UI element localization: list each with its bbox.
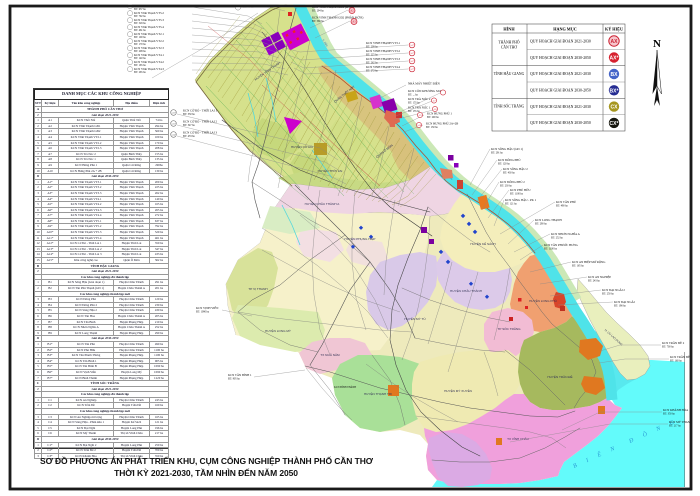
svg-text:KCN LONG THẠNH: KCN LONG THẠNH <box>535 218 562 222</box>
svg-text:KCN ĐẠI NGÃI: KCN ĐẠI NGÃI <box>614 299 635 304</box>
svg-text:KCN ĐÔNG PHÚ 2: KCN ĐÔNG PHÚ 2 <box>500 179 525 184</box>
svg-text:KÝ HIỆU: KÝ HIỆU <box>605 27 623 32</box>
svg-text:ĐT: 700 ha: ĐT: 700 ha <box>662 345 675 348</box>
svg-text:HUYỆN MỶ TÚ: HUYỆN MỶ TÚ <box>404 316 425 321</box>
svg-text:KCN VĩNH THẠNH VT3.2: KCN VĩNH THẠNH VT3.2 <box>366 49 401 53</box>
svg-text:ĐT: 217 ha: ĐT: 217 ha <box>669 424 682 427</box>
svg-text:AX: AX <box>611 39 619 45</box>
svg-text:ĐT: 291 ha: ĐT: 291 ha <box>491 151 504 154</box>
svg-text:KCN TÂN PHÚ: KCN TÂN PHÚ <box>556 199 577 204</box>
svg-text:HUYỆN CỜ ĐỎ: HUYỆN CỜ ĐỎ <box>291 144 314 149</box>
svg-text:ĐT: 347 ha: ĐT: 347 ha <box>183 124 196 127</box>
svg-text:ĐT: 160 ha: ĐT: 160 ha <box>670 359 683 362</box>
svg-text:ĐT: 225 ha: ĐT: 225 ha <box>366 53 379 56</box>
svg-text:ĐT: 252 ha: ĐT: 252 ha <box>551 236 564 239</box>
svg-text:HẠNG MỤC: HẠNG MỤC <box>553 27 577 32</box>
svg-text:KCN KHÁNH HÒA: KCN KHÁNH HÒA <box>663 407 689 412</box>
svg-text:BX*: BX* <box>610 88 619 94</box>
svg-text:A12*: A12* <box>171 112 176 115</box>
svg-text:KCN SÔNG HẬU - PK 1: KCN SÔNG HẬU - PK 1 <box>505 197 537 202</box>
svg-text:ĐT: 272 ha: ĐT: 272 ha <box>366 69 379 72</box>
svg-text:AX*: AX* <box>610 56 619 62</box>
svg-text:CẦN THƠ: CẦN THƠ <box>501 45 518 50</box>
svg-text:QUY HOẠCH GIAI ĐOẠN 2030-2050: QUY HOẠCH GIAI ĐOẠN 2030-2050 <box>530 121 591 125</box>
svg-text:KCN CỜ ĐỎ - THỚI LAI 3: KCN CỜ ĐỎ - THỚI LAI 3 <box>183 130 217 135</box>
svg-text:NHÀ MÁY NHIỆT ĐIỆN: NHÀ MÁY NHIỆT ĐIỆN <box>408 81 441 86</box>
svg-text:KCN CỒN KHƯƠNG M.R: KCN CỒN KHƯƠNG M.R <box>408 88 442 93</box>
svg-text:ĐT: 290 ha: ĐT: 290 ha <box>427 116 440 119</box>
svg-text:ĐT: 1090 ha: ĐT: 1090 ha <box>196 310 210 313</box>
svg-text:KCN PHÚ HỮU: KCN PHÚ HỮU <box>510 187 531 192</box>
svg-text:KCN TÂN PHƯỚC HƯNG: KCN TÂN PHƯỚC HƯNG <box>544 242 579 247</box>
svg-text:HUYỆN CHÂU THÀNH: HUYỆN CHÂU THÀNH <box>450 288 482 293</box>
svg-text:TỈNH HẬU GIANG: TỈNH HẬU GIANG <box>494 71 525 76</box>
svg-text:KCN TRÀ NÓC 1: KCN TRÀ NÓC 1 <box>408 105 431 110</box>
svg-text:HUYỆN MỶ XUYÊN: HUYỆN MỶ XUYÊN <box>444 388 472 393</box>
svg-text:A13*: A13* <box>171 123 176 126</box>
svg-text:KCN AN NGHIỆP: KCN AN NGHIỆP <box>588 274 611 279</box>
svg-text:KCN SÔNG HẬU (GĐ 1): KCN SÔNG HẬU (GĐ 1) <box>491 146 523 151</box>
svg-text:KCN VỊNH VIỄN: KCN VỊNH VIỄN <box>196 305 219 310</box>
svg-text:KCN HƯNG PHÚ 1: KCN HƯNG PHÚ 1 <box>427 111 452 116</box>
svg-text:ĐT: 262 ha: ĐT: 262 ha <box>366 61 379 64</box>
svg-text:KCN TRẦN ĐỀ 2: KCN TRẦN ĐỀ 2 <box>662 340 685 345</box>
svg-text:QUY HOẠCH GIAI ĐOẠN 2030-2050: QUY HOẠCH GIAI ĐOẠN 2030-2050 <box>530 89 591 93</box>
svg-text:ĐT: 155 ha: ĐT: 155 ha <box>408 101 421 104</box>
svg-text:HUYỆN CHÂU THÀNH A: HUYỆN CHÂU THÀNH A <box>305 201 341 206</box>
svg-text:ĐT: 1100 ha: ĐT: 1100 ha <box>544 247 558 250</box>
svg-text:QUY HOẠCH GIAI ĐOẠN 2021-2030: QUY HOẠCH GIAI ĐOẠN 2021-2030 <box>530 105 591 109</box>
svg-text:KCN ĐẠI NGÃI 2: KCN ĐẠI NGÃI 2 <box>602 287 625 292</box>
svg-text:THÀNH PHỐ: THÀNH PHỐ <box>498 40 520 45</box>
svg-text:CX: CX <box>611 105 619 111</box>
svg-text:A14*: A14* <box>171 134 176 137</box>
svg-text:KCN CỜ ĐỎ - THỚI LAI 2: KCN CỜ ĐỎ - THỚI LAI 2 <box>183 119 217 124</box>
svg-text:KCN BÌNH THÀNH: KCN BÌNH THÀNH <box>334 386 356 389</box>
svg-text:ĐT: 905 ha: ĐT: 905 ha <box>228 377 241 380</box>
svg-text:KCN CỜ ĐỎ - THỚI LAI 1: KCN CỜ ĐỎ - THỚI LAI 1 <box>183 108 217 113</box>
svg-text:ĐT: 196 ha: ĐT: 196 ha <box>614 304 627 307</box>
svg-text:HUYỆN PHỤNG HIỆP: HUYỆN PHỤNG HIỆP <box>345 236 376 241</box>
svg-text:KCN AN HIỆP MỞ RỘNG: KCN AN HIỆP MỞ RỘNG <box>572 259 606 264</box>
svg-text:ĐT: 243 ha: ĐT: 243 ha <box>588 279 601 282</box>
svg-text:KCN ĐÔNG PHÚ: KCN ĐÔNG PHÚ <box>498 157 521 162</box>
svg-text:TX NGÃ NĂM: TX NGÃ NĂM <box>320 352 340 357</box>
svg-text:ĐT: ... ha: ĐT: ... ha <box>408 93 419 96</box>
svg-text:KCN VĩNH THẠNH VT3.3: KCN VĩNH THẠNH VT3.3 <box>366 57 401 61</box>
svg-text:QUY HOẠCH GIAI ĐOẠN 2021-2030: QUY HOẠCH GIAI ĐOẠN 2021-2030 <box>530 72 591 76</box>
svg-text:ĐT: 165 ha: ĐT: 165 ha <box>572 264 585 267</box>
svg-text:HUYỆN THỚI LAI: HUYỆN THỚI LAI <box>318 168 343 173</box>
svg-text:ĐT: 120 ha: ĐT: 120 ha <box>498 162 511 165</box>
svg-text:ĐT: 350 ha: ĐT: 350 ha <box>663 412 676 415</box>
svg-text:TỈNH SÓC TRĂNG: TỈNH SÓC TRĂNG <box>494 104 525 109</box>
svg-text:ĐT: 121 ha: ĐT: 121 ha <box>505 202 518 205</box>
svg-text:ĐT: 430 ha: ĐT: 430 ha <box>503 171 516 174</box>
svg-text:ĐT: 294 ha: ĐT: 294 ha <box>312 9 325 12</box>
svg-text:QUY HOẠCH GIAI ĐOẠN 2021-2030: QUY HOẠCH GIAI ĐOẠN 2021-2030 <box>530 40 591 44</box>
svg-text:TP VỊ THANH: TP VỊ THANH <box>248 287 267 291</box>
svg-text:ĐT: 230 ha: ĐT: 230 ha <box>500 184 513 187</box>
svg-text:KCN TRẦN ĐỀ: KCN TRẦN ĐỀ <box>670 354 690 359</box>
svg-text:HUYỆN LONG MỶ: HUYỆN LONG MỶ <box>265 328 291 333</box>
svg-text:HUYỆN TRẦN ĐỀ: HUYỆN TRẦN ĐỀ <box>547 374 572 379</box>
svg-text:CX*: CX* <box>610 121 619 127</box>
svg-text:N: N <box>653 38 661 50</box>
svg-text:KCN HƯNG PHÚ 2A+2B: KCN HƯNG PHÚ 2A+2B <box>426 121 458 126</box>
svg-text:ĐT: 350 ha: ĐT: 350 ha <box>183 113 196 116</box>
svg-text:HUYỆN LONG PHÚ: HUYỆN LONG PHÚ <box>529 298 557 303</box>
svg-text:KCN VĩNH THẠNH VT4.4: KCN VĩNH THẠNH VT4.4 <box>366 65 401 69</box>
svg-text:KCN MỶ THANH: KCN MỶ THANH <box>669 419 693 424</box>
svg-text:HUYỆN KẾ SÁCH: HUYỆN KẾ SÁCH <box>470 241 495 246</box>
svg-text:ĐT: 490 ha: ĐT: 490 ha <box>556 204 569 207</box>
svg-text:ĐT: 560 ha: ĐT: 560 ha <box>312 20 325 23</box>
svg-text:ĐT: 209 ha: ĐT: 209 ha <box>366 45 379 48</box>
svg-text:KCN TÂN BÌNH 1: KCN TÂN BÌNH 1 <box>228 372 252 377</box>
svg-text:KCN TRÀ NÓC 2: KCN TRÀ NÓC 2 <box>408 96 431 101</box>
svg-text:ĐT: 433 ha: ĐT: 433 ha <box>183 135 196 138</box>
svg-text:KCN VĩNH THẠNH VT3.1: KCN VĩNH THẠNH VT3.1 <box>366 41 401 45</box>
svg-text:HUYỆN THẠNH TRỊ: HUYỆN THẠNH TRỊ <box>364 391 392 396</box>
svg-text:QUY HOẠCH GIAI ĐOẠN 2030-2050: QUY HOẠCH GIAI ĐOẠN 2030-2050 <box>530 56 591 60</box>
svg-text:TP SÓC TRĂNG: TP SÓC TRĂNG <box>497 326 521 331</box>
svg-text:ĐT: 1100 ha: ĐT: 1100 ha <box>510 192 524 195</box>
svg-text:ĐT: 130 ha: ĐT: 130 ha <box>426 126 439 129</box>
svg-text:HÌNH: HÌNH <box>503 27 515 32</box>
svg-text:KCN NHƠN NGHĨA A: KCN NHƠN NGHĨA A <box>551 231 581 236</box>
svg-text:BX: BX <box>611 72 619 78</box>
svg-text:ĐT: 265 ha: ĐT: 265 ha <box>134 71 147 74</box>
svg-text:ĐT: 290 ha: ĐT: 290 ha <box>535 222 548 225</box>
svg-text:TX VĨNH CHÂU: TX VĨNH CHÂU <box>507 436 529 441</box>
svg-text:KCN SÔNG HẬU 2: KCN SÔNG HẬU 2 <box>503 166 528 171</box>
svg-text:ĐT: 250 ha: ĐT: 250 ha <box>602 292 615 295</box>
